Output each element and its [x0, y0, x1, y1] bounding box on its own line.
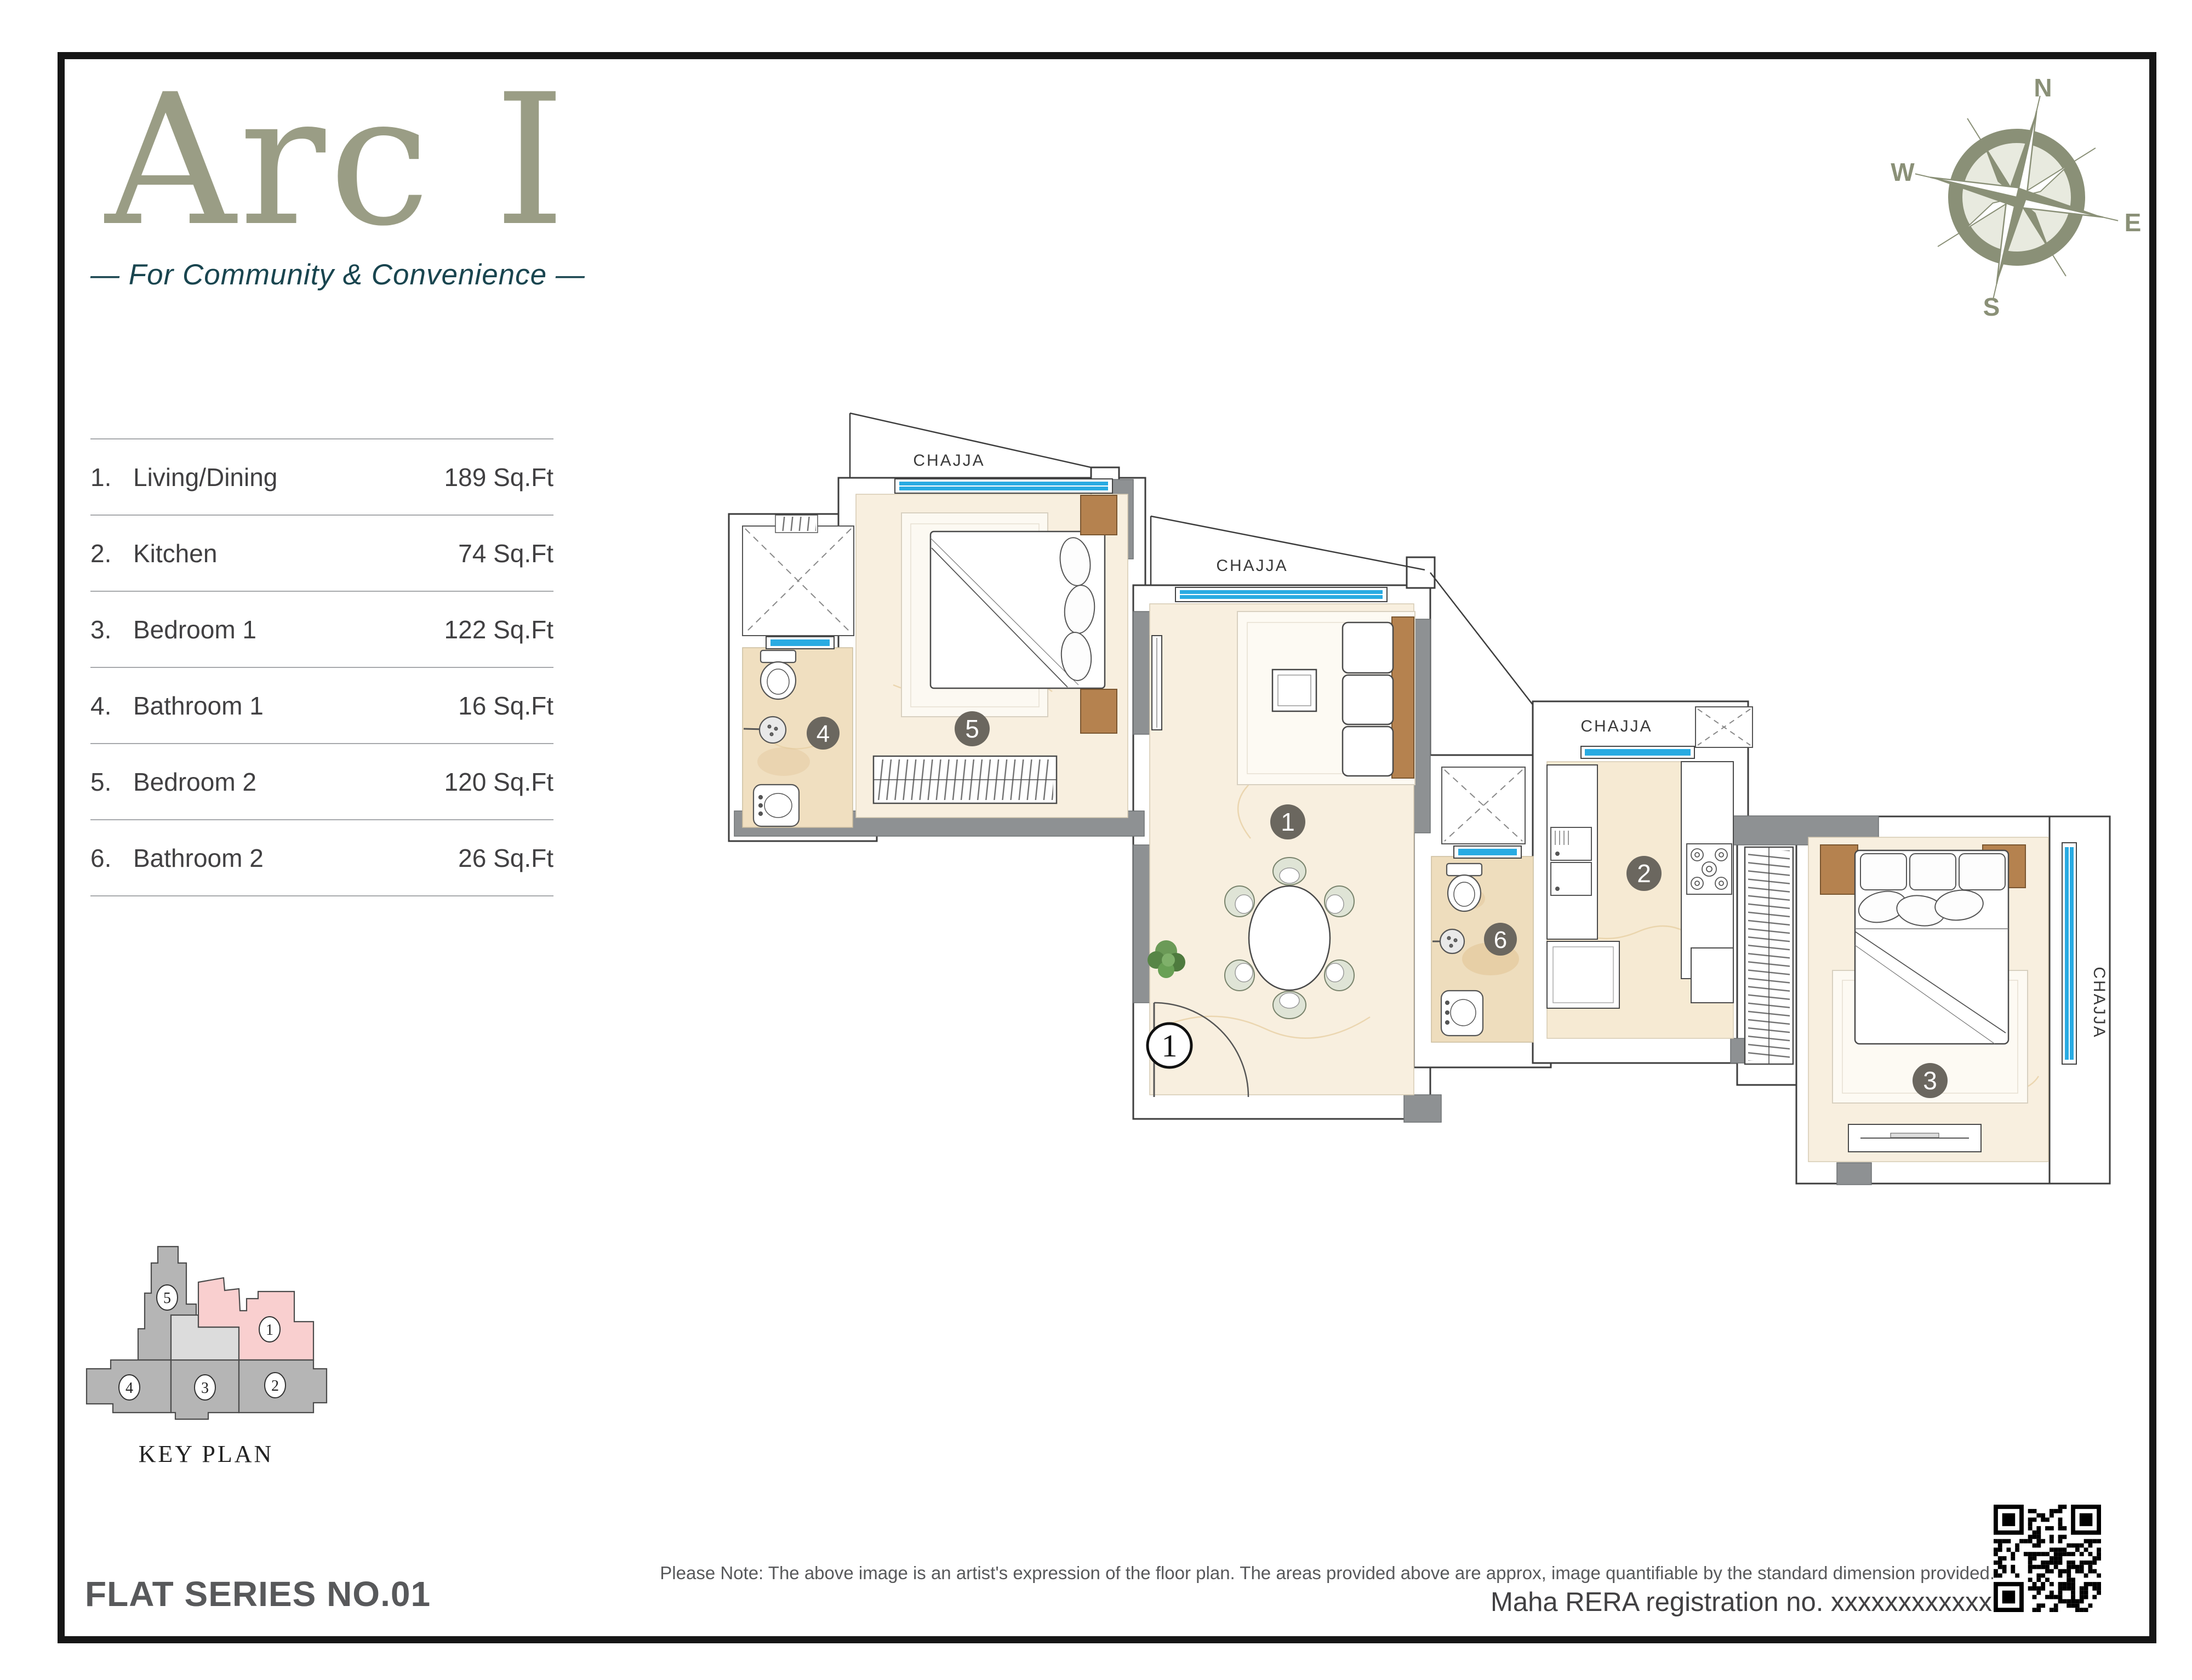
room-name: Kitchen: [133, 539, 217, 568]
window-living: [1175, 587, 1387, 602]
room-name: Bathroom 2: [133, 843, 264, 873]
window-bedroom2: [895, 479, 1112, 493]
table-row: 2.Kitchen 74 Sq.Ft: [90, 516, 553, 592]
wood-headboard: [1081, 689, 1117, 733]
shower-head: [760, 717, 786, 743]
room-area: 189 Sq.Ft: [444, 462, 553, 492]
wood-headboard: [1081, 495, 1117, 535]
toilet-tank: [761, 650, 796, 662]
window-kitchen: [1581, 746, 1694, 758]
corridor-wardrobe: [1745, 847, 1793, 1064]
kitchen-island: [1547, 941, 1619, 1008]
cushion: [1910, 854, 1956, 890]
key-num-3: 3: [201, 1380, 209, 1397]
room-marker-4: 4: [817, 721, 830, 747]
room-no: 1.: [90, 462, 133, 492]
room-area: 120 Sq.Ft: [444, 767, 553, 797]
key-num-5: 5: [163, 1290, 171, 1307]
room-area: 26 Sq.Ft: [458, 843, 553, 873]
rera-registration: Maha RERA registration no. xxxxxxxxxxxx: [1096, 1587, 1992, 1618]
chajja-label: CHAJJA: [2090, 967, 2108, 1038]
room-no: 5.: [90, 767, 133, 797]
compass-star: [1892, 72, 2142, 322]
floor-plan: CHAJJA CHAJJA CHAJJA CHAJJA: [712, 378, 2115, 1200]
window-bedroom1: [2062, 843, 2076, 1064]
room-no: 6.: [90, 843, 133, 873]
toilet-tank: [1447, 864, 1482, 876]
sofa-back: [1392, 617, 1414, 778]
entrance-marker-label: 1: [1162, 1028, 1178, 1064]
room-area: 74 Sq.Ft: [458, 539, 553, 568]
window-bath2: [1454, 846, 1521, 858]
room-marker-6: 6: [1494, 927, 1507, 953]
table-row: 3.Bedroom 1 122 Sq.Ft: [90, 592, 553, 668]
chajja-label: CHAJJA: [913, 452, 985, 470]
chajja-label: CHAJJA: [1216, 557, 1288, 575]
coffee-table: [1272, 670, 1316, 711]
brochure-page: Arc I — For Community & Convenience —: [0, 0, 2192, 1680]
key-num-1: 1: [266, 1322, 273, 1339]
room-no: 2.: [90, 539, 133, 568]
table-row: 4.Bathroom 1 16 Sq.Ft: [90, 668, 553, 744]
key-num-4: 4: [125, 1380, 133, 1397]
room-area: 16 Sq.Ft: [458, 691, 553, 721]
key-plan-title: KEY PLAN: [139, 1441, 274, 1467]
room-name: Bedroom 2: [133, 767, 256, 797]
brand-block: Arc I — For Community & Convenience —: [90, 66, 584, 292]
room-marker-5: 5: [965, 715, 979, 743]
chajja-label: CHAJJA: [1580, 717, 1652, 735]
room-marker-1: 1: [1281, 808, 1295, 836]
compass-w: W: [1891, 158, 1915, 186]
flat-series-title: FLAT SERIES NO.01: [85, 1574, 431, 1614]
compass-rose-icon: N E S W: [1863, 60, 2170, 345]
compass-s: S: [1983, 293, 2000, 321]
room-area-table: 1.Living/Dining 189 Sq.Ft 2.Kitchen 74 S…: [90, 438, 553, 896]
disclaimer-note: Please Note: The above image is an artis…: [603, 1563, 1995, 1584]
table-row: 5.Bedroom 2 120 Sq.Ft: [90, 744, 553, 820]
brand-tagline: — For Community & Convenience —: [90, 258, 584, 292]
table-row: 6.Bathroom 2 26 Sq.Ft: [90, 820, 553, 896]
sofa-cushion: [1343, 675, 1393, 724]
brand-title: Arc I: [90, 66, 584, 256]
room-name: Bedroom 1: [133, 615, 256, 644]
table-row: 1.Living/Dining 189 Sq.Ft: [90, 439, 553, 516]
gas-hob: [1687, 844, 1732, 894]
room-name: Bathroom 1: [133, 691, 264, 721]
room-no: 4.: [90, 691, 133, 721]
sofa-cushion: [1343, 727, 1393, 776]
qr-code: [1994, 1505, 2101, 1612]
room-area: 122 Sq.Ft: [444, 615, 553, 644]
kitchen-cabinet: [1691, 948, 1733, 1003]
compass-e: E: [2125, 208, 2142, 237]
room-marker-2: 2: [1637, 859, 1651, 888]
room-marker-3: 3: [1923, 1066, 1937, 1095]
room-no: 3.: [90, 615, 133, 644]
room-name: Living/Dining: [133, 462, 277, 492]
shower-head: [1440, 929, 1464, 953]
cushion: [1959, 854, 2005, 890]
dining-table: [1249, 886, 1330, 990]
cushion: [1860, 854, 1906, 890]
wood-headboard: [1820, 845, 1858, 894]
window-bath1: [766, 637, 834, 649]
key-plan: 5 1 4 3 2 KEY PLAN: [77, 1238, 340, 1479]
compass-n: N: [2034, 73, 2052, 102]
sofa-cushion: [1343, 622, 1393, 673]
key-num-2: 2: [271, 1378, 279, 1395]
